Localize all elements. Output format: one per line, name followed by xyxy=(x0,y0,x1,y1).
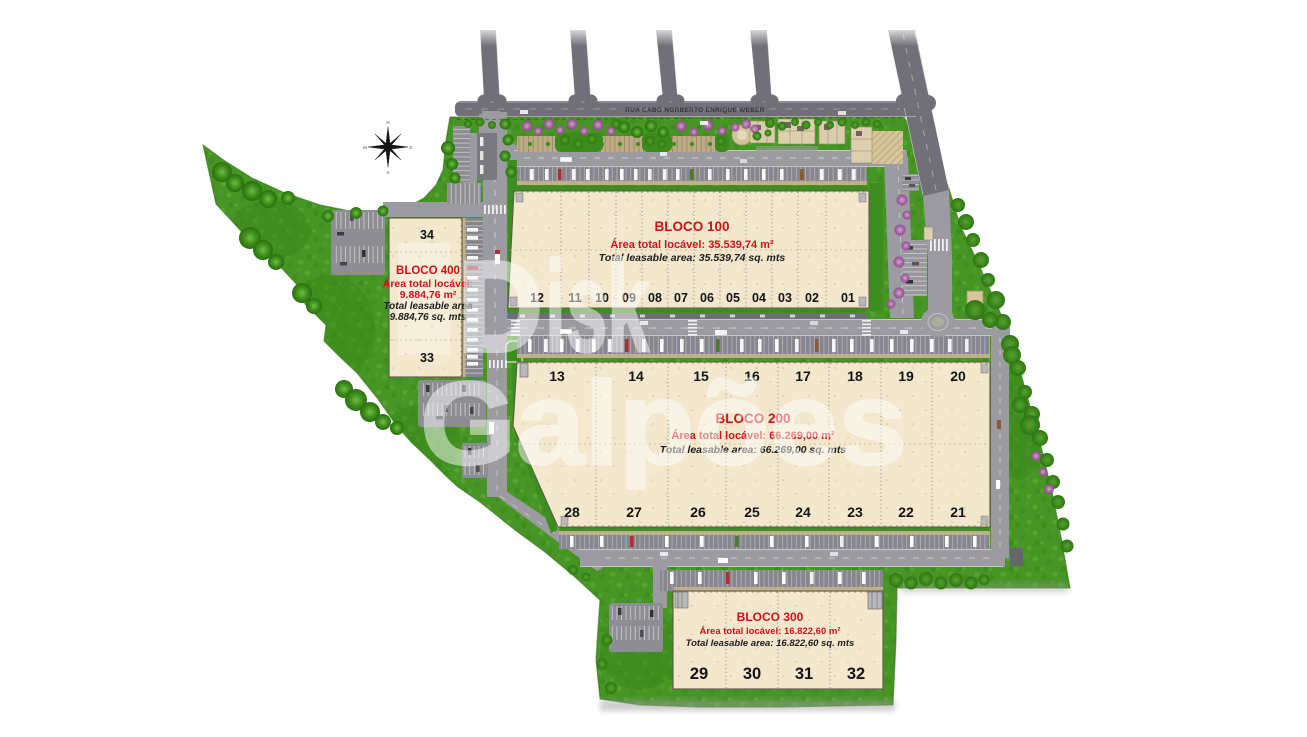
svg-text:04: 04 xyxy=(752,291,766,305)
svg-text:BLOCO 100: BLOCO 100 xyxy=(654,219,729,234)
svg-text:03: 03 xyxy=(778,291,792,305)
svg-text:N: N xyxy=(386,120,389,125)
svg-text:01: 01 xyxy=(841,291,855,305)
svg-text:9.884,76 m²: 9.884,76 m² xyxy=(400,289,457,301)
svg-text:26: 26 xyxy=(690,504,706,520)
svg-text:27: 27 xyxy=(626,504,642,520)
svg-text:9.884,76 sq. mts: 9.884,76 sq. mts xyxy=(390,312,467,323)
svg-text:RUA CABO NORBERTO ENRIQUE WEBE: RUA CABO NORBERTO ENRIQUE WEBER xyxy=(625,107,764,114)
svg-text:Galpões: Galpões xyxy=(420,358,907,490)
svg-text:30: 30 xyxy=(743,665,761,683)
svg-text:06: 06 xyxy=(700,291,714,305)
svg-text:31: 31 xyxy=(795,665,813,683)
svg-text:02: 02 xyxy=(805,291,819,305)
svg-text:32: 32 xyxy=(847,665,865,683)
svg-text:S: S xyxy=(386,170,389,175)
svg-text:E: E xyxy=(409,145,412,150)
svg-text:28: 28 xyxy=(564,504,580,520)
svg-text:23: 23 xyxy=(847,504,863,520)
svg-text:Total leasable area: 16.822,60: Total leasable area: 16.822,60 sq. mts xyxy=(686,638,855,649)
svg-text:29: 29 xyxy=(690,665,708,683)
svg-text:24: 24 xyxy=(795,504,811,520)
svg-text:05: 05 xyxy=(726,291,740,305)
svg-text:BLOCO 400: BLOCO 400 xyxy=(396,265,460,277)
svg-text:22: 22 xyxy=(898,504,914,520)
svg-text:20: 20 xyxy=(950,368,966,384)
svg-text:34: 34 xyxy=(420,228,434,242)
svg-text:08: 08 xyxy=(648,291,662,305)
svg-text:07: 07 xyxy=(674,291,688,305)
svg-text:21: 21 xyxy=(950,504,966,520)
svg-text:25: 25 xyxy=(744,504,760,520)
svg-text:Área total locável: 16.822,60: Área total locável: 16.822,60 m² xyxy=(700,626,841,637)
svg-text:BLOCO 300: BLOCO 300 xyxy=(737,610,804,624)
